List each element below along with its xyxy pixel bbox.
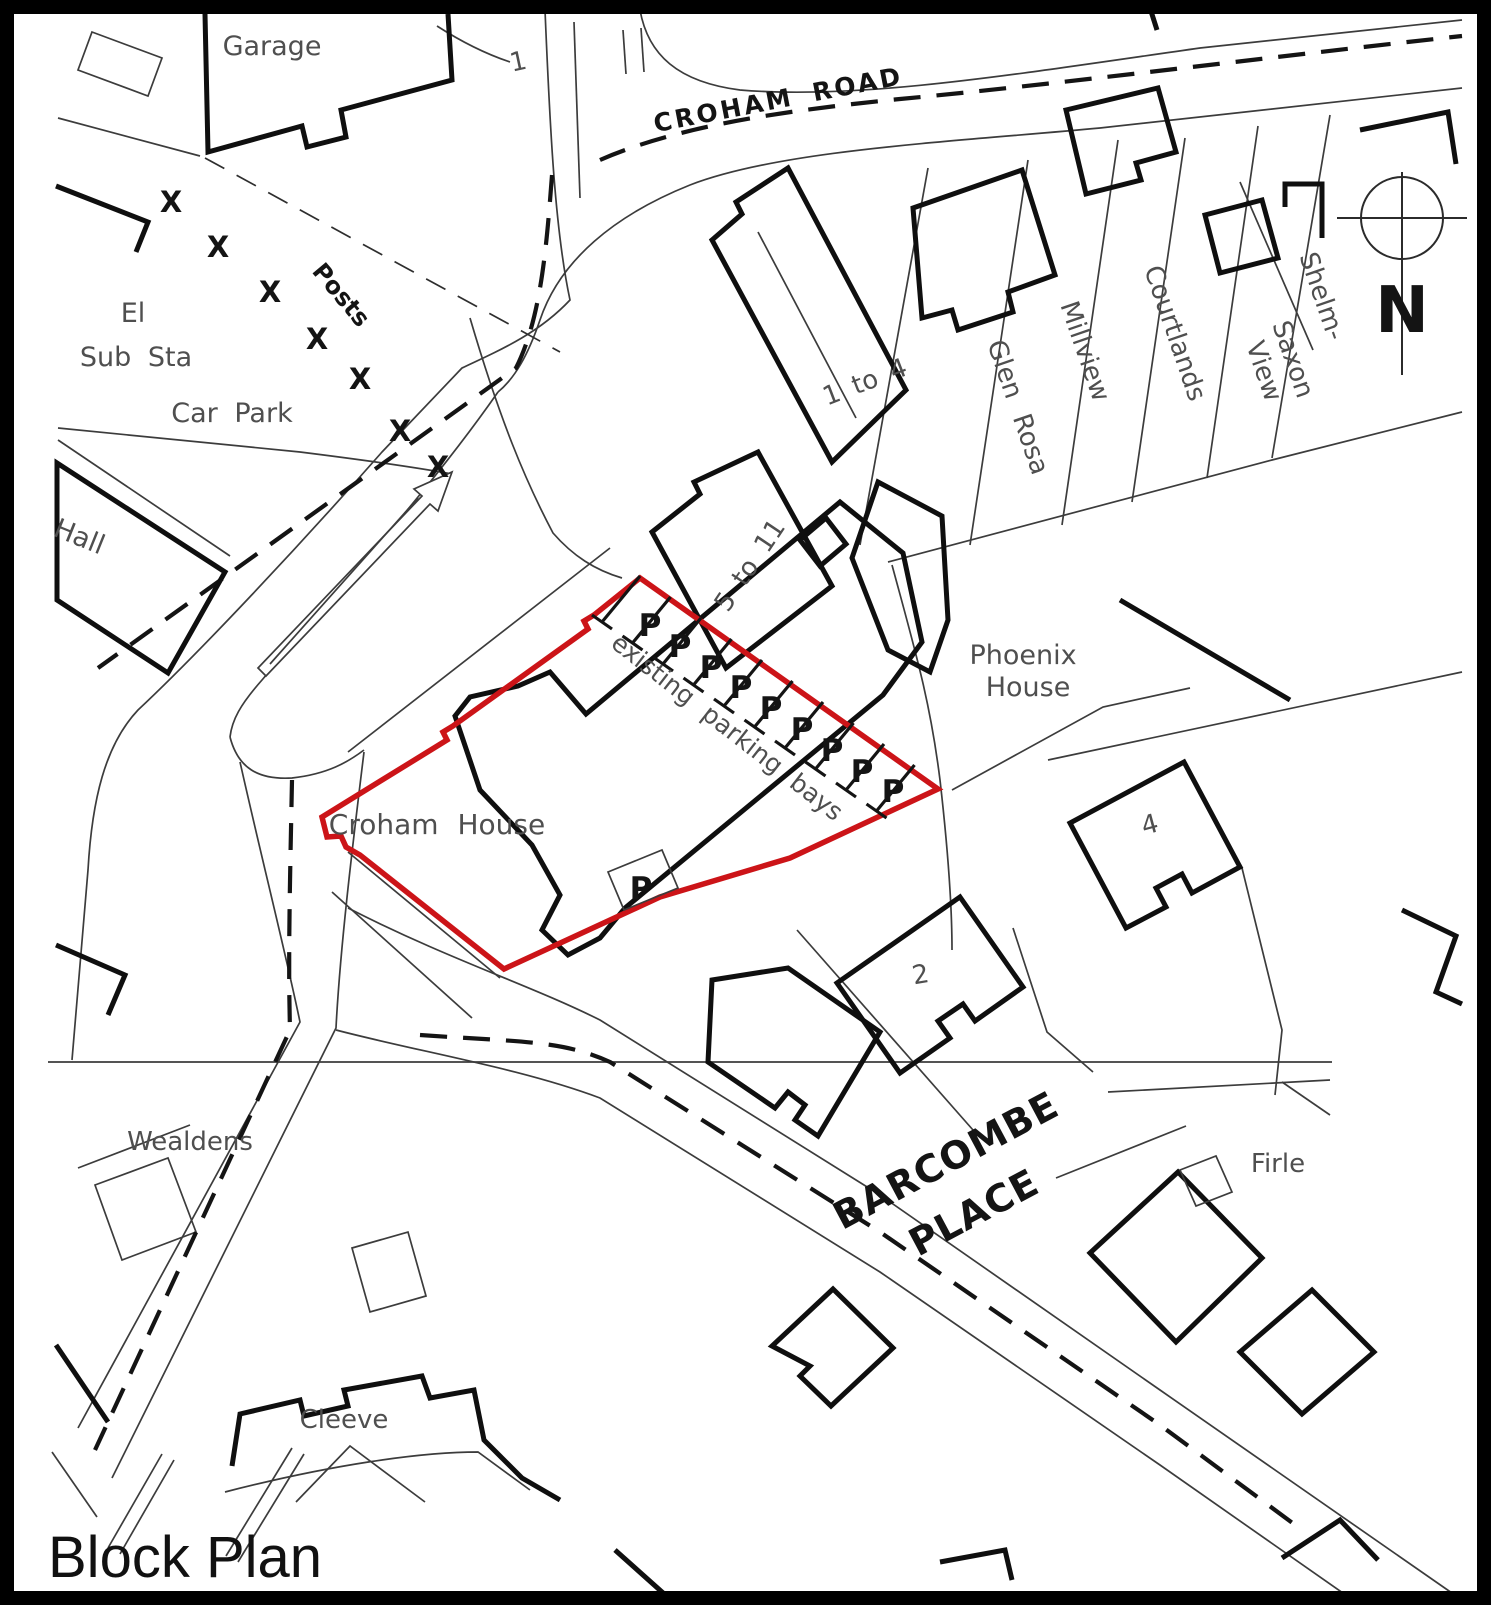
road-b-lower-west: [78, 762, 300, 1428]
right-edge-building: [1402, 910, 1462, 1004]
post-x-marker: X: [389, 414, 411, 448]
far-right-house: [1360, 112, 1456, 164]
phoenix-west-boundary: [892, 565, 952, 950]
barcombe-centreline: [420, 1035, 1302, 1530]
label-no-2: 2: [910, 959, 932, 991]
parking-p-marker: P: [730, 670, 753, 706]
building-1-to-4: [712, 168, 906, 462]
building-e-of-5-to-11: [852, 482, 948, 672]
post-x-marker: X: [160, 185, 182, 219]
plot-line-firle-1: [1056, 1126, 1186, 1178]
wealdens-building: [95, 1158, 196, 1260]
bottom-right-building: [1282, 1520, 1378, 1560]
car-park-edge-dashed: [205, 158, 560, 352]
gate-line-1: [623, 30, 626, 74]
label-5-to-11: 5 to 11: [709, 514, 792, 617]
phoenix-south-boundary: [952, 688, 1190, 790]
cleeve-plot-curve: [225, 1452, 530, 1492]
label-millview: Millview: [1053, 297, 1115, 405]
post-x-marker: X: [207, 230, 229, 264]
house-se-of-firle: [1240, 1290, 1374, 1414]
gate-line-2: [641, 28, 644, 72]
house-no-4: [1070, 762, 1240, 928]
parking-p-marker: P: [791, 712, 814, 748]
arrow-inner-line: [270, 498, 418, 664]
corner-building-w: [56, 186, 148, 252]
house-s-of-barcombe: [772, 1289, 893, 1406]
label-el: El: [121, 298, 146, 329]
barcombe-sw-edge: [336, 1030, 1360, 1605]
bay-divider: [602, 576, 640, 622]
label-wealdens: Wealdens: [127, 1127, 253, 1157]
plot-line-east: [1048, 672, 1462, 760]
bend-centreline: [98, 175, 552, 668]
road-b-lower-east: [112, 752, 364, 1478]
label-sub-sta: Sub Sta: [80, 342, 192, 373]
car-park-nw-boundary: [58, 118, 200, 156]
verge-u-curve: [230, 737, 364, 778]
label-phoenix: Phoenix: [969, 640, 1076, 671]
plot-line-shelm: [1207, 126, 1258, 478]
label-north-n: N: [1375, 274, 1429, 348]
label-pho-house: House: [986, 672, 1071, 703]
plots-back-line: [888, 412, 1462, 562]
parking-p-marker: P: [669, 629, 692, 665]
label-title: Block Plan: [48, 1525, 322, 1590]
firle-house: [1090, 1172, 1262, 1342]
plot-line-east-of-4: [1242, 868, 1282, 1095]
label-garage: Garage: [223, 31, 322, 62]
bottom-centre-building-2: [940, 1550, 1012, 1580]
plot-line-firle-3: [1282, 1082, 1330, 1115]
croham-road-south-edge: [498, 88, 1462, 392]
label-no-4: 4: [1138, 809, 1162, 842]
road-edge: [72, 10, 570, 1060]
road-b-centreline: [95, 780, 292, 1450]
label-cleeve: Cleeve: [300, 1405, 389, 1435]
car-park-entrance-arrow: [258, 472, 452, 676]
plot-line-2-4: [1013, 928, 1093, 1072]
parking-p-marker: P: [760, 691, 783, 727]
parking-p-marker: P: [639, 608, 662, 644]
post-x-marker: X: [427, 450, 449, 484]
drive-hatch-5: [52, 1452, 97, 1517]
plot-line-firle-2: [1108, 1080, 1330, 1092]
block-plan-page: PPPPPPPPPP XXXXXXX Garage1CROHAM ROADElS…: [0, 0, 1491, 1605]
label-croham-house: Croham House: [329, 808, 545, 841]
left-edge-building-2: [56, 1345, 108, 1422]
parking-p-marker: P: [700, 650, 723, 686]
hall-building: [57, 463, 225, 673]
bay-divider-cap: [592, 615, 612, 629]
glen-rosa-house: [913, 170, 1055, 330]
label-car-park: Car Park: [171, 398, 293, 429]
post-x-marker: X: [259, 275, 281, 309]
small-outbuilding: [352, 1232, 426, 1312]
parking-p-marker: P: [630, 871, 653, 907]
parking-p-marker: P: [882, 774, 905, 810]
pavement-nw-of-site: [348, 548, 610, 752]
post-x-markers: XXXXXXX: [160, 185, 449, 484]
label-shelm: Shelm-: [1293, 249, 1351, 345]
house-s-of-croham: [708, 968, 880, 1136]
label-plot-1: 1: [507, 46, 529, 79]
label-firle: Firle: [1251, 1149, 1305, 1179]
phoenix-house-building: [1120, 600, 1290, 700]
kerb-bend: [470, 318, 622, 578]
pavement-sw-of-site-1: [348, 852, 500, 978]
parking-p-marker: P: [821, 733, 844, 769]
post-x-marker: X: [349, 362, 371, 396]
millview-house: [1066, 88, 1176, 194]
left-edge-building-1: [56, 945, 125, 1015]
parking-p-marker: P: [851, 754, 874, 790]
corner-building-nw: [78, 32, 162, 96]
road-and-plot-lines: [48, 10, 1462, 1605]
drive-hatch-6: [296, 1446, 425, 1502]
label-1-to-4: 1 to 4: [819, 353, 912, 412]
label-croham-road: CROHAM ROAD: [651, 61, 906, 138]
map-labels: Garage1CROHAM ROADElSub StaCar ParkPosts…: [48, 31, 1429, 1590]
buildings: [56, 8, 1462, 1605]
label-glen-rosa: Glen Rosa: [981, 336, 1055, 479]
plot-1-line: [574, 22, 580, 198]
block-plan-drawing: PPPPPPPPPP XXXXXXX Garage1CROHAM ROADElS…: [0, 0, 1491, 1605]
barcombe-ne-edge: [348, 908, 1462, 1600]
post-x-marker: X: [306, 322, 328, 356]
